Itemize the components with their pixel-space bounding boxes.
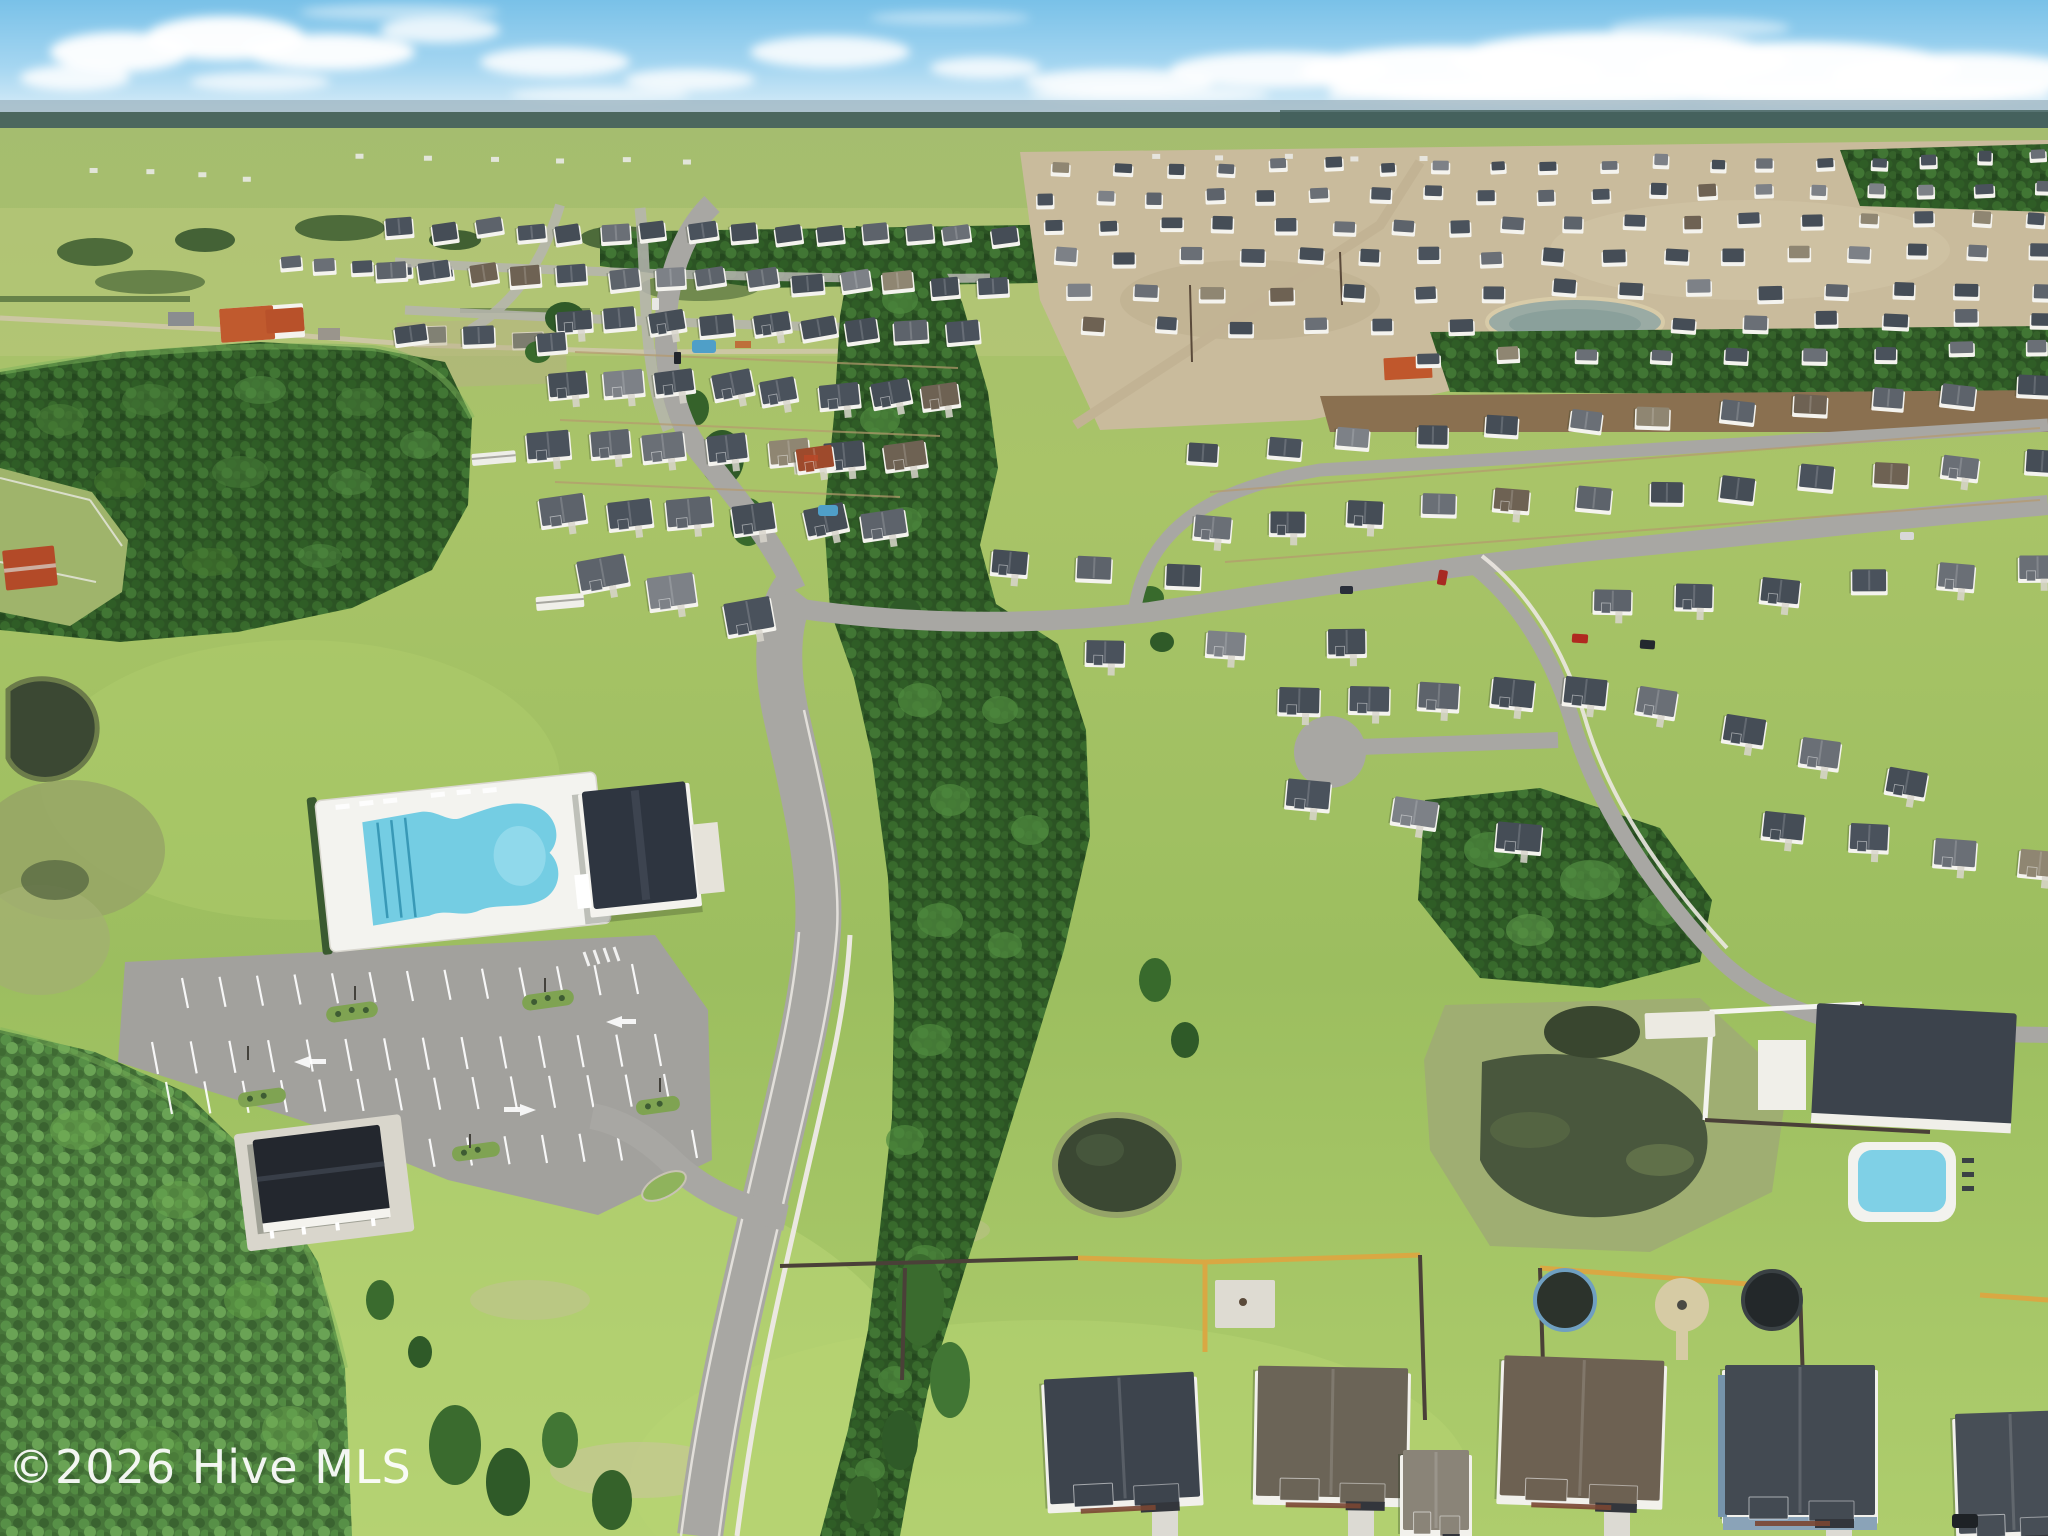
house-roof	[1742, 315, 1769, 334]
house-roof	[1575, 349, 1599, 364]
house-roof	[1948, 341, 1975, 357]
house-roof	[1649, 183, 1668, 200]
house-roof	[1562, 216, 1584, 233]
culdesac-stub	[1332, 740, 1558, 748]
house-roof	[1541, 247, 1565, 267]
house-roof	[279, 255, 303, 273]
distant-house	[424, 156, 432, 161]
large-house	[1398, 1450, 1472, 1536]
house-roof	[1482, 286, 1506, 303]
house-roof	[1419, 493, 1457, 519]
house-roof	[728, 222, 759, 246]
house-roof	[534, 332, 568, 357]
house-roof	[1847, 246, 1872, 264]
house-roof	[1810, 185, 1828, 201]
distant-house	[1285, 154, 1293, 159]
house-roof	[1205, 188, 1226, 205]
house-roof	[772, 224, 804, 248]
house-roof	[1849, 569, 1887, 595]
house-roof	[552, 223, 583, 248]
house-roof	[1796, 463, 1836, 494]
house-roof	[1255, 190, 1276, 206]
distant-house	[556, 158, 564, 163]
house-roof	[1892, 282, 1915, 300]
house-roof	[1113, 163, 1134, 177]
house-roof	[429, 221, 460, 246]
house-roof	[382, 216, 414, 240]
distant-house	[1152, 154, 1160, 159]
house-roof	[1199, 287, 1226, 304]
house-roof	[860, 222, 890, 246]
house-roof	[1650, 350, 1673, 366]
house-roof	[1416, 353, 1442, 368]
house-roof	[1379, 163, 1396, 177]
house-roof	[1683, 216, 1703, 234]
aerial-photo: ©2026 Hive MLS	[0, 0, 2048, 1536]
house-roof	[351, 260, 375, 277]
house-roof	[1500, 216, 1525, 234]
house-roof	[1686, 279, 1712, 297]
house-roof	[1671, 318, 1697, 335]
house-roof	[1185, 442, 1220, 467]
pavilion	[234, 1114, 415, 1252]
house-roof	[1937, 383, 1977, 411]
house-roof	[1591, 189, 1611, 204]
house-roof	[466, 262, 500, 288]
house-roof	[1167, 164, 1186, 180]
house-roof	[1870, 387, 1906, 413]
house-roof	[553, 264, 588, 288]
house-roof	[1814, 311, 1838, 329]
house-roof	[1757, 286, 1784, 305]
large-house	[1718, 1365, 1878, 1530]
house-roof	[1802, 348, 1828, 366]
house-roof	[1653, 154, 1670, 170]
house-roof	[598, 223, 632, 246]
house-roof	[1917, 185, 1935, 200]
house-roof	[1648, 482, 1684, 507]
house-roof	[1269, 158, 1288, 173]
house-roof	[1036, 194, 1055, 210]
house-roof	[1342, 284, 1367, 303]
house-roof	[1537, 190, 1556, 206]
house-roof	[1874, 347, 1897, 364]
house-roof	[1211, 216, 1235, 234]
house-roof	[1966, 244, 1988, 261]
house-roof	[2015, 374, 2048, 399]
house-roof	[1871, 462, 1910, 489]
house-roof	[1417, 247, 1441, 265]
house-roof	[1567, 408, 1604, 435]
trampoline-dark	[1743, 1271, 1801, 1329]
house-roof	[514, 224, 547, 245]
house-roof	[653, 267, 687, 292]
scene-canvas	[0, 0, 2048, 1536]
house-roof	[1633, 406, 1671, 430]
distant-house	[146, 169, 154, 174]
house-roof	[1324, 156, 1344, 172]
house-roof	[1074, 556, 1114, 584]
house-roof	[1163, 564, 1202, 592]
house-roof	[1882, 313, 1910, 331]
large-house	[1251, 1366, 1411, 1512]
house-roof	[1496, 346, 1520, 364]
house-roof	[2029, 243, 2048, 261]
house-roof	[1304, 317, 1329, 334]
house-roof	[1298, 247, 1325, 265]
house-roof	[1977, 150, 1993, 165]
house-roof	[1790, 394, 1828, 419]
house-roof	[988, 226, 1020, 250]
house-roof	[879, 270, 915, 295]
house-roof	[1449, 220, 1472, 238]
house-roof	[1133, 284, 1160, 302]
house-roof	[1476, 190, 1496, 205]
distant-house	[623, 157, 631, 162]
house-roof	[1801, 214, 1825, 230]
house-roof	[1913, 211, 1935, 227]
house-roof	[1423, 185, 1444, 200]
house-roof	[2030, 313, 2048, 330]
distant-house	[90, 168, 98, 173]
house-roof	[1954, 309, 1979, 327]
house-roof	[814, 225, 846, 248]
house-roof	[312, 258, 337, 276]
house-roof	[1391, 219, 1415, 236]
house-roof	[2035, 181, 2048, 196]
house-roof	[788, 274, 825, 298]
house-roof	[1867, 183, 1886, 198]
house-roof	[507, 265, 543, 291]
house-roof	[373, 261, 408, 284]
house-roof	[1369, 187, 1392, 204]
distant-house	[355, 154, 363, 159]
house-roof	[1787, 246, 1811, 263]
house-roof	[2022, 449, 2048, 478]
house-roof	[1721, 248, 1745, 266]
house-roof	[1275, 218, 1298, 236]
distant-house	[683, 160, 691, 165]
house-roof	[1716, 475, 1756, 506]
house-roof	[1333, 221, 1357, 237]
house-roof	[1358, 249, 1381, 267]
house-roof	[1482, 414, 1519, 439]
house-roof	[460, 325, 496, 349]
house-roof	[1269, 288, 1296, 306]
house-roof	[1755, 158, 1774, 172]
house-roof	[1081, 316, 1106, 336]
house-roof	[2029, 149, 2047, 163]
house-roof	[1573, 485, 1613, 515]
house-roof	[1601, 249, 1627, 267]
house-roof	[2026, 340, 2048, 357]
house-roof	[903, 224, 935, 246]
distant-house	[243, 177, 251, 182]
house-roof	[1974, 184, 1996, 199]
house-roof	[1538, 162, 1558, 176]
house-roof	[1919, 154, 1937, 169]
house-roof	[1066, 284, 1092, 301]
house-roof	[1216, 164, 1235, 179]
distant-house	[1215, 155, 1223, 160]
house-roof	[1737, 212, 1762, 228]
house-roof	[636, 220, 667, 244]
house-roof	[1723, 348, 1749, 367]
house-roof	[1160, 218, 1184, 233]
house-roof	[1697, 183, 1718, 201]
farm-shed	[168, 312, 194, 326]
house-roof	[842, 317, 881, 347]
house-roof	[1448, 319, 1475, 336]
house-roof	[1717, 399, 1756, 427]
house-roof	[1044, 220, 1064, 235]
house-roof	[928, 277, 961, 302]
house-roof	[1308, 187, 1330, 203]
house-roof	[1099, 221, 1119, 236]
house-roof	[1414, 286, 1438, 303]
house-roof	[1490, 161, 1507, 175]
large-house	[1039, 1372, 1204, 1518]
house-roof	[943, 319, 982, 347]
house-roof	[1155, 316, 1179, 334]
house-roof	[1600, 161, 1619, 174]
house-roof	[975, 277, 1010, 300]
house-roof	[1054, 246, 1079, 266]
distant-house	[198, 172, 206, 177]
distant-house	[491, 157, 499, 162]
house-roof	[1859, 213, 1880, 228]
house-roof	[1479, 252, 1503, 269]
house-roof	[1333, 427, 1371, 453]
house-roof	[1871, 158, 1889, 172]
house-roof	[600, 306, 637, 334]
house-roof	[696, 313, 736, 340]
house-roof	[1754, 184, 1774, 199]
distant-house	[1420, 156, 1428, 161]
house-roof	[2025, 212, 2046, 229]
house-roof	[1145, 193, 1163, 210]
house-roof	[1240, 249, 1266, 267]
house-roof	[1551, 278, 1577, 298]
house-roof	[1228, 322, 1254, 338]
distant-house	[1350, 156, 1358, 161]
house-roof	[1371, 319, 1394, 336]
house-roof	[1617, 282, 1644, 300]
house-roof	[1906, 243, 1928, 259]
house-roof	[1623, 214, 1647, 231]
watermark: ©2026 Hive MLS	[8, 1440, 412, 1494]
house-roof	[606, 267, 642, 294]
house-roof	[891, 319, 930, 345]
house-roof	[1265, 437, 1303, 463]
house-roof	[1816, 158, 1836, 172]
house-roof	[1112, 252, 1136, 268]
house-roof	[1051, 162, 1071, 177]
house-roof	[1179, 247, 1203, 264]
house-roof	[1664, 248, 1690, 265]
white-shed	[1645, 1011, 1716, 1039]
house-roof	[1972, 210, 1993, 228]
large-house	[1494, 1355, 1667, 1514]
house-roof	[1431, 161, 1450, 175]
house-roof	[1824, 284, 1850, 301]
house-roof	[1096, 191, 1116, 206]
house-roof	[1415, 425, 1449, 449]
trampoline-blue	[1535, 1270, 1595, 1330]
house-roof	[1953, 284, 1980, 301]
small-pond	[1055, 1115, 1179, 1215]
house-roof	[2032, 284, 2048, 303]
house-roof	[1710, 160, 1727, 174]
